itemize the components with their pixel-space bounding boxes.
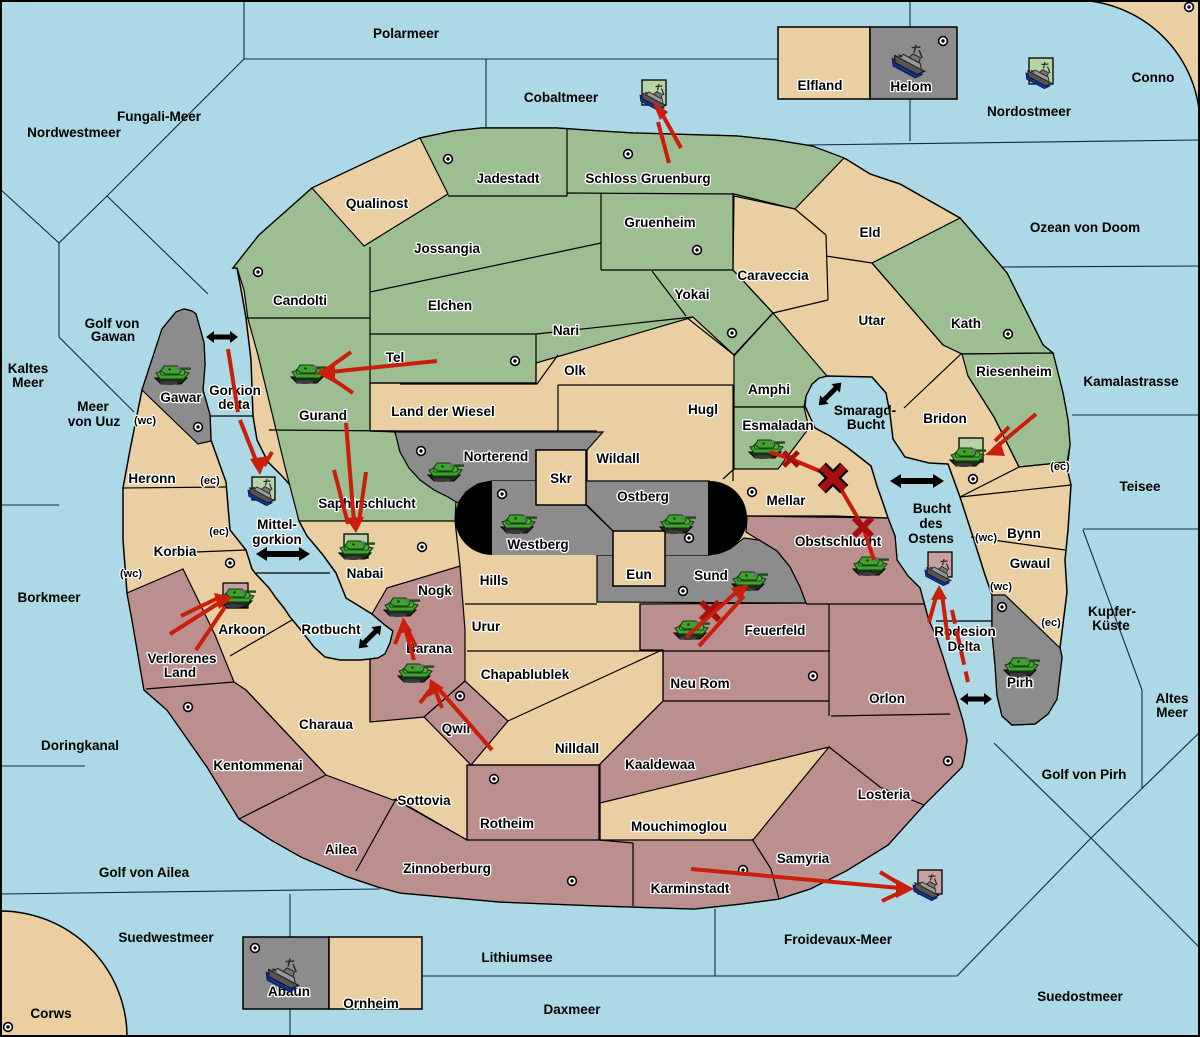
svg-text:Meer: Meer [12, 375, 44, 390]
svg-text:gorkion: gorkion [252, 532, 302, 547]
svg-text:von Uuz: von Uuz [68, 414, 121, 429]
svg-text:Delta: Delta [947, 639, 981, 654]
svg-text:Bucht: Bucht [847, 417, 886, 432]
svg-text:Losteria: Losteria [858, 787, 911, 802]
svg-text:Qualinost: Qualinost [346, 196, 409, 211]
svg-text:Jadestadt: Jadestadt [476, 171, 540, 186]
svg-text:Kupfer-: Kupfer- [1088, 604, 1136, 619]
svg-text:Heronn: Heronn [128, 471, 175, 486]
svg-text:(ec): (ec) [200, 475, 220, 487]
svg-text:Doringkanal: Doringkanal [41, 738, 119, 753]
svg-text:Teisee: Teisee [1119, 479, 1161, 494]
svg-text:Nordwestmeer: Nordwestmeer [27, 125, 122, 140]
svg-text:Skr: Skr [550, 471, 573, 486]
svg-text:Mellar: Mellar [766, 493, 806, 508]
svg-text:Altes: Altes [1155, 691, 1188, 706]
svg-text:Neu Rom: Neu Rom [670, 676, 729, 691]
svg-text:Esmaladan: Esmaladan [742, 418, 813, 433]
svg-text:Meer: Meer [1156, 705, 1188, 720]
svg-text:Verlorenes: Verlorenes [147, 651, 216, 666]
svg-text:(wc): (wc) [975, 532, 997, 544]
svg-text:Golf von Pirh: Golf von Pirh [1042, 767, 1127, 782]
svg-text:Ailea: Ailea [325, 842, 358, 857]
svg-text:Yokai: Yokai [674, 287, 709, 302]
svg-text:Feuerfeld: Feuerfeld [745, 623, 806, 638]
svg-text:Bynn: Bynn [1007, 526, 1041, 541]
svg-text:(wc): (wc) [134, 415, 156, 427]
svg-text:Caraveccia: Caraveccia [737, 268, 809, 283]
svg-text:Gwaul: Gwaul [1010, 556, 1051, 571]
svg-text:Qwil: Qwil [442, 721, 471, 736]
svg-text:Utar: Utar [858, 313, 886, 328]
svg-text:Eld: Eld [859, 225, 880, 240]
svg-text:Riesenheim: Riesenheim [976, 364, 1052, 379]
svg-text:Charaua: Charaua [299, 717, 354, 732]
svg-text:Hills: Hills [480, 573, 509, 588]
svg-text:Suedostmeer: Suedostmeer [1037, 989, 1123, 1004]
svg-text:Eun: Eun [626, 567, 652, 582]
svg-text:Bridon: Bridon [923, 411, 967, 426]
svg-text:Polarmeer: Polarmeer [373, 26, 440, 41]
svg-text:Sottovia: Sottovia [397, 793, 451, 808]
svg-text:Froidevaux-Meer: Froidevaux-Meer [784, 932, 893, 947]
svg-text:Ornheim: Ornheim [343, 996, 399, 1011]
svg-text:Chapablublek: Chapablublek [481, 667, 570, 682]
svg-text:Land der Wiesel: Land der Wiesel [391, 404, 494, 419]
svg-text:Cobaltmeer: Cobaltmeer [524, 90, 599, 105]
svg-text:Nordostmeer: Nordostmeer [987, 104, 1072, 119]
svg-text:Nabai: Nabai [347, 566, 384, 581]
svg-text:Bucht: Bucht [913, 501, 952, 516]
svg-text:Conno: Conno [1132, 70, 1175, 85]
svg-text:Jossangia: Jossangia [414, 241, 481, 256]
svg-text:Helom: Helom [890, 79, 931, 94]
svg-text:Gruenheim: Gruenheim [624, 215, 695, 230]
svg-text:Kaaldewaa: Kaaldewaa [625, 757, 695, 772]
svg-text:Nogk: Nogk [418, 583, 452, 598]
svg-text:Amphi: Amphi [748, 382, 790, 397]
svg-text:Samyria: Samyria [777, 851, 830, 866]
svg-text:Gawar: Gawar [160, 390, 202, 405]
svg-text:Candolti: Candolti [273, 293, 327, 308]
svg-text:(ec): (ec) [1041, 617, 1061, 629]
svg-text:Suedwestmeer: Suedwestmeer [118, 930, 214, 945]
svg-text:Hugl: Hugl [688, 402, 718, 417]
svg-text:Ostberg: Ostberg [617, 489, 669, 504]
svg-text:Meer: Meer [77, 399, 109, 414]
svg-text:Gurand: Gurand [299, 408, 347, 423]
svg-text:Gawan: Gawan [91, 329, 135, 344]
svg-text:Mittel-: Mittel- [257, 517, 297, 532]
svg-text:Westberg: Westberg [507, 537, 568, 552]
svg-text:Korbia: Korbia [154, 544, 197, 559]
svg-text:Lithiumsee: Lithiumsee [481, 950, 553, 965]
svg-text:des: des [919, 516, 942, 531]
svg-text:(ec): (ec) [209, 526, 229, 538]
svg-text:Kentommenai: Kentommenai [213, 758, 302, 773]
svg-text:Kamalastrasse: Kamalastrasse [1083, 374, 1179, 389]
svg-text:Ostens: Ostens [908, 531, 954, 546]
svg-text:Borkmeer: Borkmeer [17, 590, 81, 605]
svg-text:Corws: Corws [30, 1006, 71, 1021]
svg-text:Elchen: Elchen [428, 298, 472, 313]
svg-text:Arkoon: Arkoon [218, 622, 265, 637]
svg-text:Küste: Küste [1092, 618, 1130, 633]
svg-text:Elfland: Elfland [797, 78, 842, 93]
svg-text:Daxmeer: Daxmeer [543, 1002, 601, 1017]
svg-text:Golf von Ailea: Golf von Ailea [99, 865, 190, 880]
svg-text:Pirh: Pirh [1007, 675, 1033, 690]
svg-text:Nari: Nari [553, 323, 579, 338]
svg-text:Schloss Gruenburg: Schloss Gruenburg [585, 171, 710, 186]
svg-text:Zinnoberburg: Zinnoberburg [403, 861, 491, 876]
svg-text:Mouchimoglou: Mouchimoglou [631, 819, 727, 834]
svg-text:Ozean von Doom: Ozean von Doom [1030, 220, 1140, 235]
svg-text:Rotheim: Rotheim [480, 816, 534, 831]
svg-text:Urur: Urur [472, 619, 501, 634]
svg-text:Nilldall: Nilldall [555, 741, 599, 756]
svg-text:(wc): (wc) [120, 568, 142, 580]
svg-text:(wc): (wc) [990, 581, 1012, 593]
svg-text:Norterend: Norterend [464, 449, 529, 464]
svg-text:Karminstadt: Karminstadt [651, 881, 730, 896]
svg-text:Kaltes: Kaltes [8, 361, 49, 376]
svg-text:Land: Land [164, 665, 196, 680]
svg-text:Fungali-Meer: Fungali-Meer [117, 109, 202, 124]
svg-text:Sund: Sund [694, 568, 728, 583]
svg-text:Rotbucht: Rotbucht [301, 622, 361, 637]
svg-text:(ec): (ec) [1050, 461, 1070, 473]
svg-text:Saphirschlucht: Saphirschlucht [318, 496, 416, 511]
svg-text:Olk: Olk [564, 363, 586, 378]
svg-text:Kath: Kath [951, 316, 981, 331]
svg-text:Orlon: Orlon [869, 691, 905, 706]
svg-text:Rodesion: Rodesion [934, 624, 996, 639]
svg-text:Wildall: Wildall [596, 451, 639, 466]
svg-text:Smaragd-: Smaragd- [834, 403, 896, 418]
